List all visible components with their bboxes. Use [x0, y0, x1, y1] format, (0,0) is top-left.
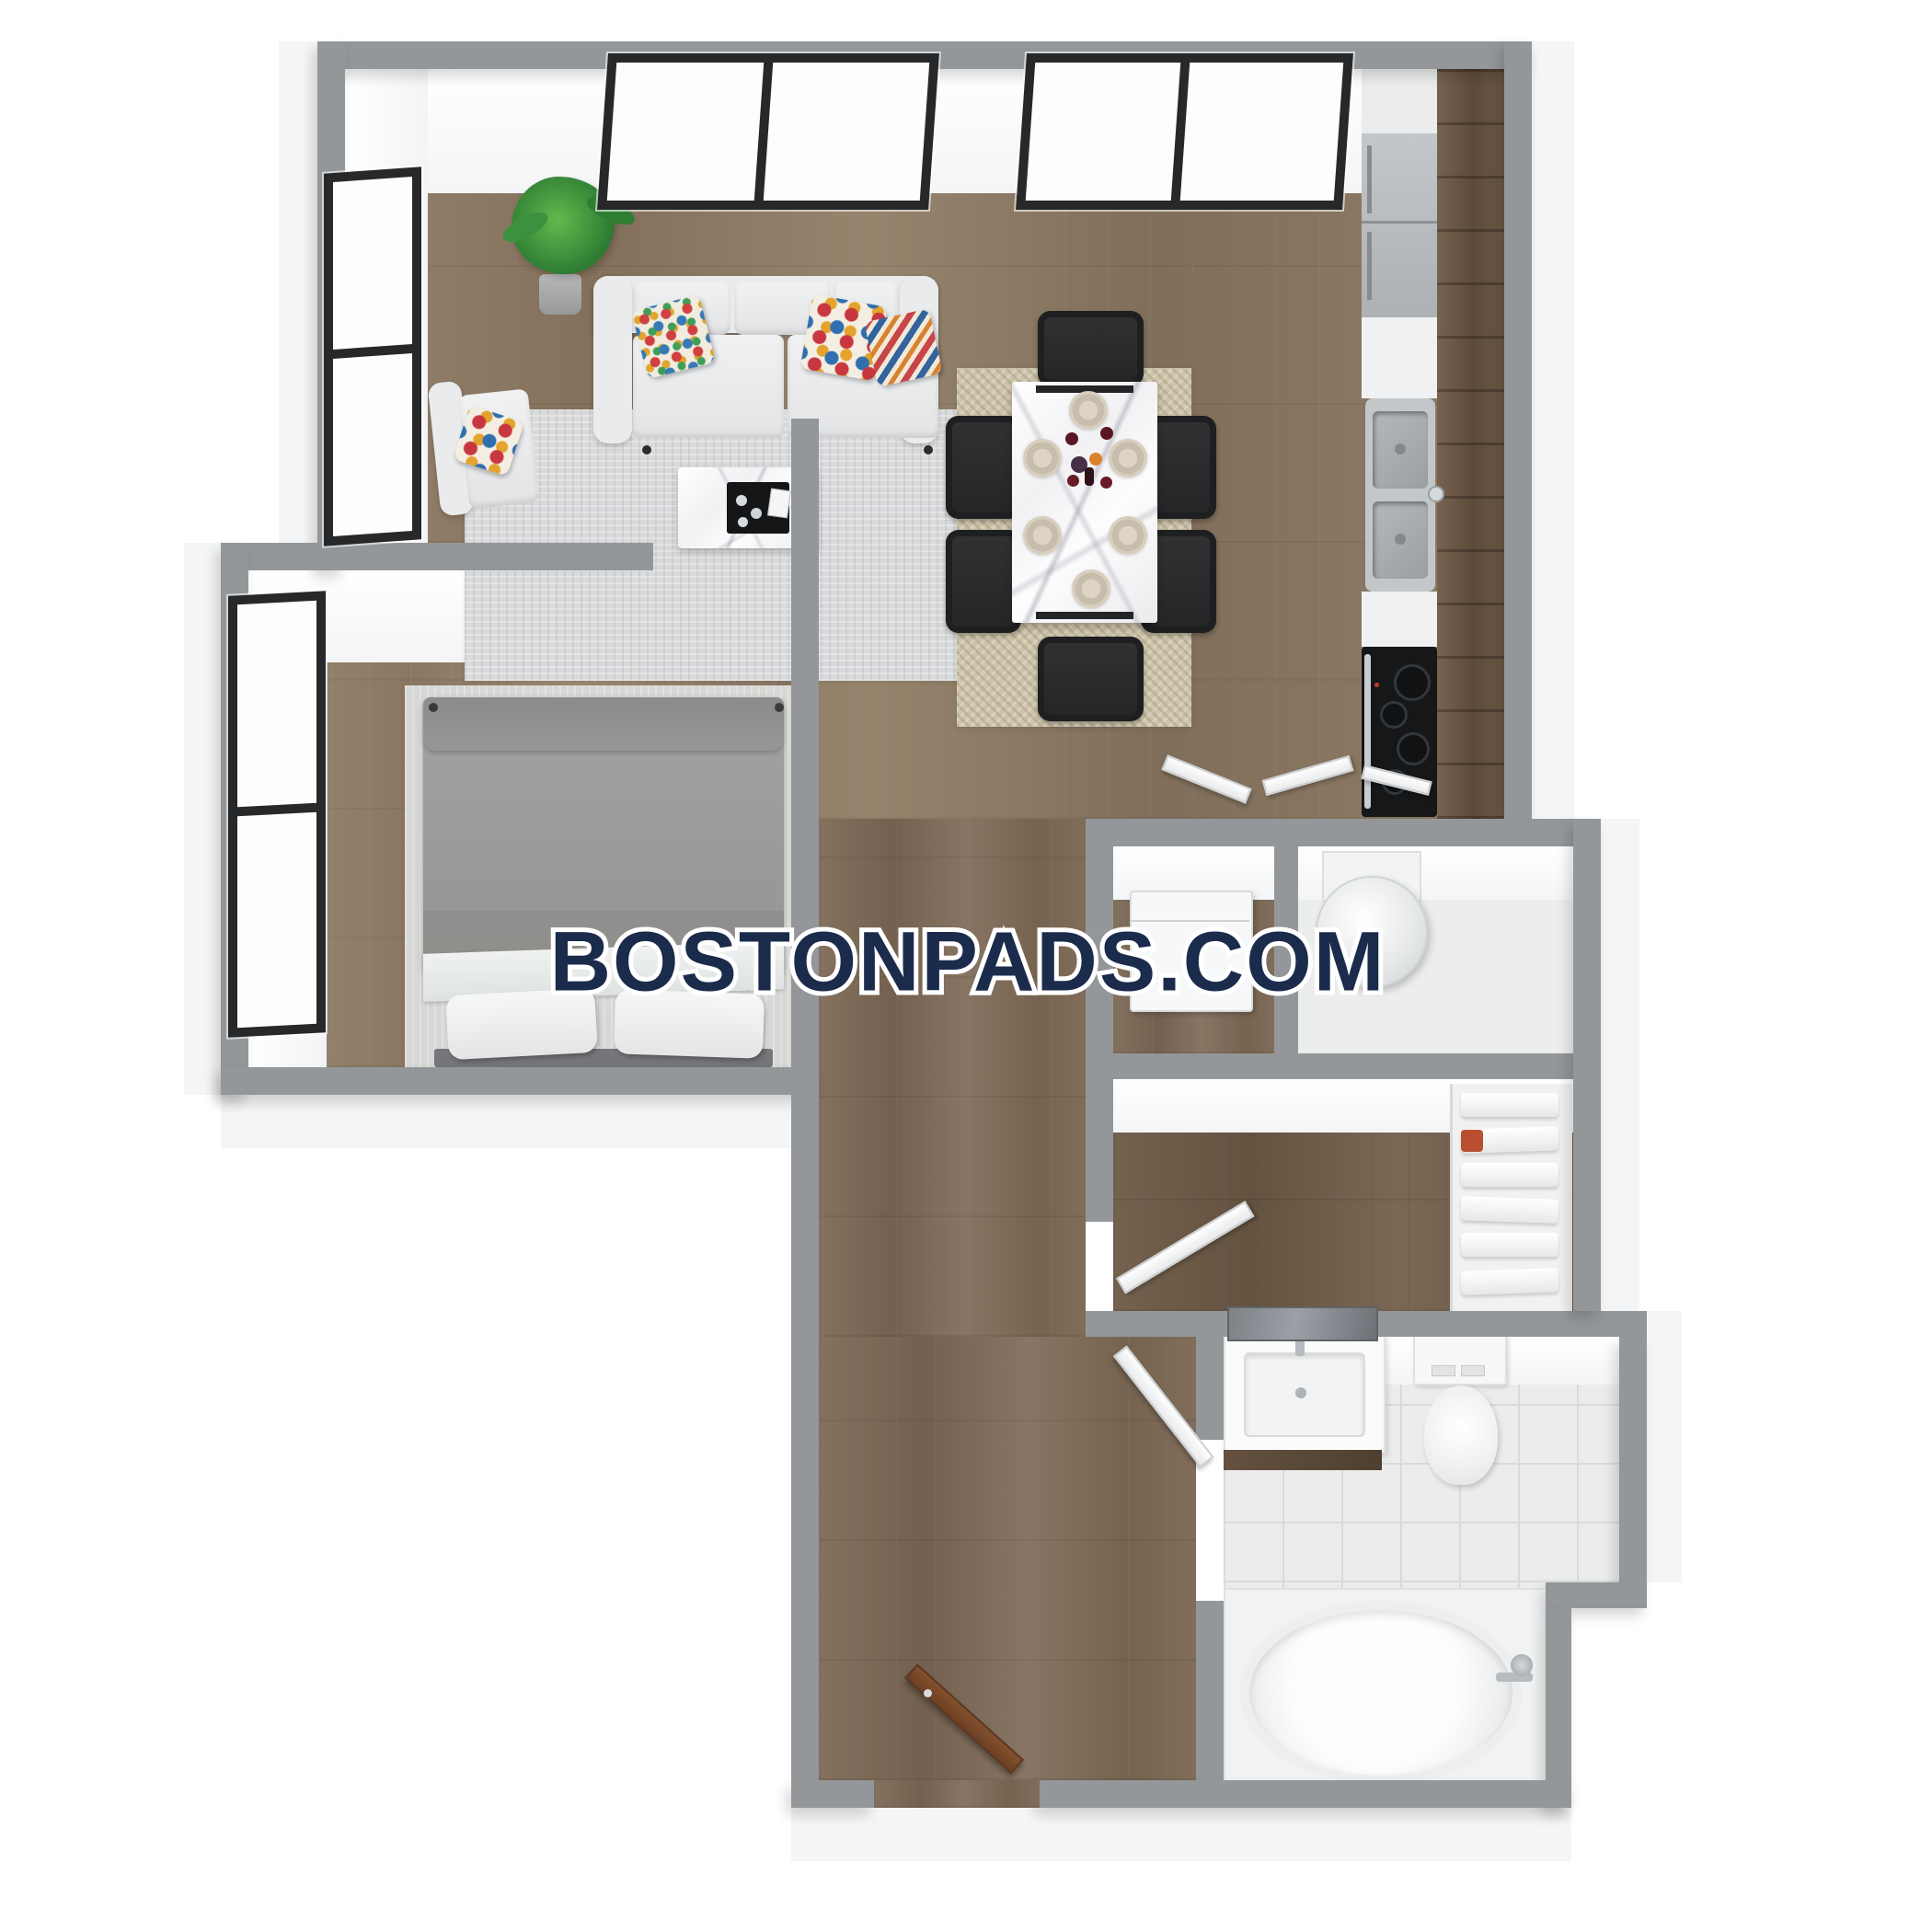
- tub-basin: [1240, 1601, 1522, 1785]
- toilet-flush-button: [1432, 1365, 1455, 1376]
- kitchen-upper-cabinet: [1362, 69, 1437, 135]
- place-setting: [1023, 516, 1062, 555]
- towel-stack: [1461, 1093, 1558, 1117]
- watermark-text: BOSTONPADS.COM: [550, 914, 1386, 1011]
- sofa-pillow-chevron: [864, 308, 942, 386]
- window-top-right-group: [1016, 53, 1353, 210]
- wall-hallway-left: [791, 419, 819, 1808]
- glass: [751, 508, 762, 519]
- wine-glass: [1100, 477, 1112, 489]
- wall-bedroom-top: [221, 543, 653, 570]
- burner: [1380, 701, 1408, 729]
- dining-chair-left-1: [946, 416, 1021, 519]
- wine-glass: [1067, 475, 1079, 487]
- tub-faucet-handle: [1511, 1654, 1533, 1676]
- place-setting: [1023, 439, 1062, 477]
- vanity-drain: [1295, 1387, 1306, 1398]
- kitchen-counter: [1362, 317, 1437, 398]
- exterior-face-left-bedroom: [184, 543, 221, 1095]
- exterior-face-right-kitchen: [1532, 41, 1574, 819]
- kitchen-counter: [1362, 592, 1437, 647]
- exterior-face-below-bottom: [791, 1808, 1571, 1861]
- wall-exterior-bathroom-right-lower: [1546, 1608, 1571, 1808]
- wall-exterior-right-kitchen: [1504, 41, 1532, 819]
- wall-utility-bottom: [1086, 1053, 1601, 1079]
- hallway-floor-upper: [819, 819, 1086, 1337]
- exterior-face-right-bathroom: [1647, 1311, 1682, 1582]
- towel-stack: [1461, 1268, 1559, 1295]
- sink-faucet: [1428, 486, 1444, 502]
- wall-closet-left: [1086, 1079, 1113, 1222]
- window-living-left: [324, 167, 421, 546]
- wall-bathroom-left-upper: [1196, 1337, 1224, 1440]
- kitchen-cabinet-run: [1437, 69, 1504, 819]
- glass: [736, 495, 747, 506]
- bed-leg: [775, 703, 784, 712]
- exterior-face-left-living: [279, 41, 317, 570]
- glass: [738, 517, 748, 527]
- wine-glass: [1065, 432, 1078, 445]
- bed-leg: [429, 703, 438, 712]
- wine-glass: [1100, 427, 1113, 440]
- exterior-face-below-bedroom: [221, 1095, 819, 1148]
- vanity-faucet: [1295, 1340, 1305, 1356]
- refrigerator-divider: [1362, 221, 1437, 224]
- toilet-flush-button: [1461, 1365, 1485, 1376]
- window-mullion: [754, 63, 773, 201]
- closet-accent-item: [1461, 1130, 1483, 1152]
- window-bedroom-left: [228, 591, 326, 1038]
- floor-plan-stage: BOSTONPADS.COM: [0, 0, 1932, 1932]
- toilet-tank: [1413, 1334, 1507, 1386]
- coffee-table-book: [767, 489, 791, 519]
- refrigerator-handle: [1367, 145, 1372, 213]
- burner: [1397, 732, 1430, 765]
- vanity-wood-base: [1224, 1450, 1382, 1470]
- sink-drain: [1395, 443, 1406, 454]
- refrigerator: [1362, 133, 1437, 317]
- entry-door-handle: [924, 1689, 932, 1697]
- place-setting: [1109, 439, 1147, 477]
- dining-chair-left-2: [946, 530, 1021, 633]
- dining-chair-bottom: [1038, 637, 1144, 721]
- towel-stack: [1461, 1233, 1558, 1257]
- window-mullion: [237, 803, 316, 817]
- refrigerator-handle: [1367, 232, 1372, 300]
- window-mullion: [333, 344, 412, 359]
- window-mullion: [1171, 63, 1190, 201]
- sink-drain: [1395, 534, 1406, 545]
- wall-exterior-bottom-left-segment: [791, 1780, 874, 1808]
- toilet-bowl: [1424, 1386, 1498, 1485]
- sofa-leg: [924, 445, 933, 454]
- sofa-leg: [642, 445, 651, 454]
- wall-exterior-bedroom-bottom: [221, 1067, 819, 1095]
- hallway-floor-lower: [819, 1337, 1196, 1780]
- plant-pot: [539, 274, 581, 315]
- place-setting: [1109, 516, 1147, 555]
- burner-indicator: [1374, 683, 1379, 687]
- wine-bottle: [1085, 467, 1094, 486]
- bed-duvet-fold-top: [423, 697, 784, 751]
- place-setting: [1072, 569, 1110, 608]
- exterior-face-right-closet: [1601, 819, 1639, 1337]
- dining-table-frame-bottom: [1036, 612, 1133, 619]
- towel-stack: [1461, 1163, 1558, 1187]
- dining-chair-top: [1038, 311, 1144, 386]
- bathroom-mirror: [1227, 1306, 1378, 1341]
- wall-exterior-closet-right: [1573, 819, 1601, 1311]
- wall-exterior-bathroom-right: [1619, 1337, 1647, 1582]
- sofa-arm-left: [593, 276, 632, 443]
- window-top-left-group: [597, 53, 939, 210]
- orange-decor: [1089, 453, 1102, 466]
- burner: [1394, 664, 1431, 701]
- wall-exterior-bottom-right-segment: [1040, 1780, 1571, 1808]
- wall-exterior-bathroom-jog: [1546, 1582, 1647, 1608]
- oven-handle: [1364, 654, 1371, 809]
- entry-threshold: [874, 1780, 1040, 1808]
- wall-utility-top: [1086, 819, 1601, 846]
- place-setting: [1069, 391, 1108, 430]
- wall-bathroom-left-lower: [1196, 1601, 1224, 1808]
- towel-stack: [1461, 1196, 1559, 1224]
